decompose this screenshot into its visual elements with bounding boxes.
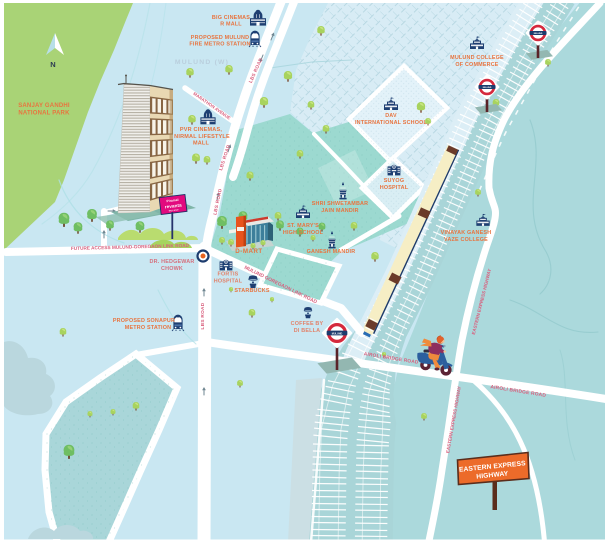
svg-text:PROPOSED MULUND: PROPOSED MULUND — [191, 35, 249, 41]
svg-text:FIRE METRO STATION: FIRE METRO STATION — [189, 42, 250, 48]
svg-text:DI BELLA: DI BELLA — [294, 328, 320, 334]
svg-text:SHRI SHWETAMBAR: SHRI SHWETAMBAR — [312, 201, 369, 207]
svg-text:PROPOSED SONAPUR: PROPOSED SONAPUR — [113, 318, 175, 324]
svg-text:INTERNATIONAL SCHOOL: INTERNATIONAL SCHOOL — [355, 120, 428, 126]
svg-text:STARBUCKS: STARBUCKS — [234, 288, 269, 294]
svg-text:VINAYAK GANESH: VINAYAK GANESH — [441, 230, 492, 236]
svg-text:N: N — [50, 60, 55, 69]
svg-text:NATIONAL PARK: NATIONAL PARK — [18, 111, 70, 117]
svg-text:GANESH MANDIR: GANESH MANDIR — [307, 249, 356, 255]
svg-text:LBS ROAD: LBS ROAD — [200, 302, 205, 329]
svg-text:MALL: MALL — [193, 141, 210, 147]
svg-text:MULUND COLLEGE: MULUND COLLEGE — [450, 55, 504, 61]
svg-text:NIRMAL LIFESTYLE: NIRMAL LIFESTYLE — [174, 134, 230, 140]
svg-text:DR. HEDGEWAR: DR. HEDGEWAR — [150, 259, 195, 265]
svg-text:D-MART: D-MART — [235, 248, 262, 255]
svg-text:METRO STATION: METRO STATION — [125, 325, 171, 331]
svg-text:SANJAY GANDHI: SANJAY GANDHI — [18, 103, 70, 109]
svg-text:FORTIS: FORTIS — [218, 272, 239, 278]
svg-text:HOSPITAL: HOSPITAL — [214, 279, 243, 285]
svg-text:JAIN MANDIR: JAIN MANDIR — [321, 208, 359, 214]
svg-text:HOSPITAL: HOSPITAL — [380, 185, 409, 191]
svg-text:SUYOG: SUYOG — [384, 178, 404, 184]
svg-text:BIG CINEMAS: BIG CINEMAS — [212, 15, 250, 21]
svg-text:ST. MARY'S: ST. MARY'S — [287, 223, 319, 229]
svg-text:OF COMMERCE: OF COMMERCE — [455, 62, 498, 68]
svg-text:PVR CINEMAS,: PVR CINEMAS, — [180, 127, 222, 133]
svg-text:VAZE COLLEGE: VAZE COLLEGE — [444, 237, 488, 243]
svg-text:MULUND: MULUND — [534, 33, 543, 35]
svg-text:HIGH SCHOOL: HIGH SCHOOL — [283, 230, 324, 236]
svg-text:MULUND (W): MULUND (W) — [175, 59, 229, 66]
svg-text:DAV: DAV — [385, 113, 397, 119]
svg-text:COFFEE BY: COFFEE BY — [291, 321, 324, 327]
svg-text:MULUND: MULUND — [483, 87, 492, 89]
svg-text:MULUND: MULUND — [332, 332, 343, 335]
svg-text:R MALL: R MALL — [220, 22, 242, 28]
svg-text:CHOWK: CHOWK — [161, 266, 183, 272]
